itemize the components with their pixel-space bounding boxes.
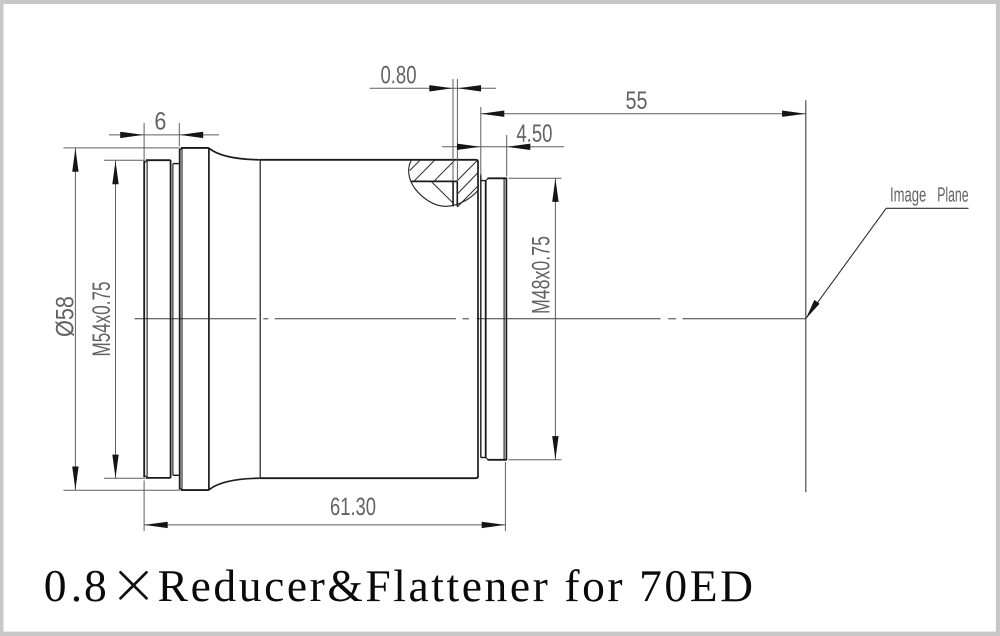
svg-text:61.30: 61.30 [330, 493, 376, 521]
svg-text:M48x0.75: M48x0.75 [528, 236, 556, 314]
svg-text:Ø58: Ø58 [52, 296, 80, 337]
svg-text:Reducer&Flattener for 70ED: Reducer&Flattener for 70ED [158, 560, 753, 611]
svg-text:0.8: 0.8 [44, 560, 107, 611]
svg-text:0.80: 0.80 [380, 61, 416, 89]
svg-text:4.50: 4.50 [516, 120, 552, 148]
svg-text:55: 55 [625, 87, 647, 115]
svg-text:6: 6 [154, 107, 166, 135]
svg-text:M54x0.75: M54x0.75 [88, 282, 116, 357]
